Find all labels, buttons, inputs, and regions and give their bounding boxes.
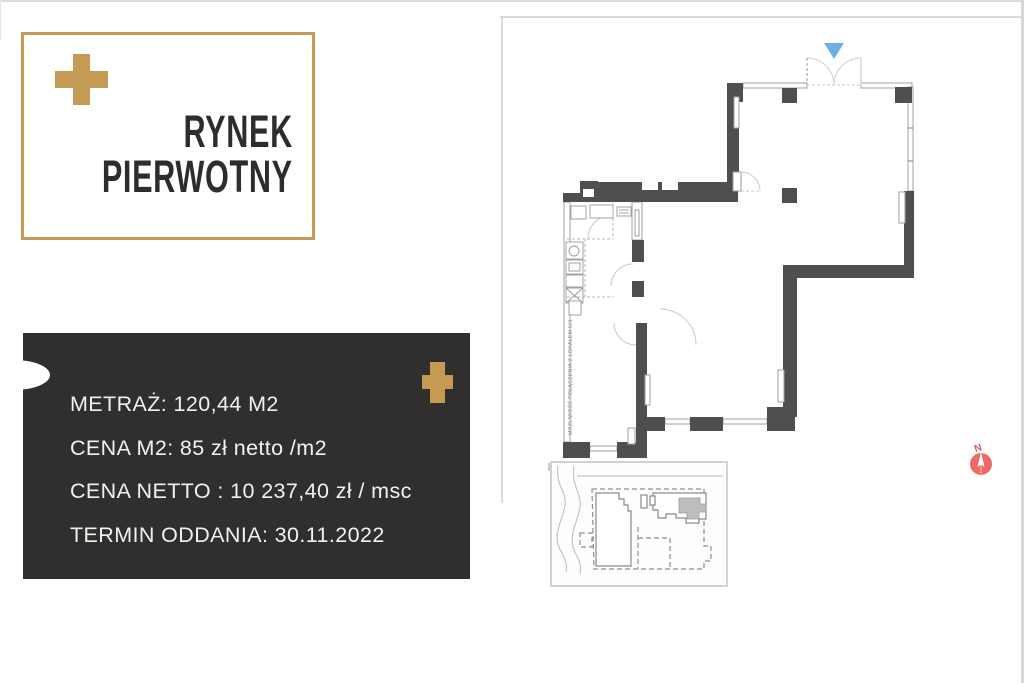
compass-icon: N <box>970 442 992 475</box>
listing-page: RYNEK PIERWOTNY METRAŻ: 120,44 M2 CENA M… <box>0 0 1024 683</box>
connection-label: MOŻLIWOŚĆ POŁĄCZENIA Z LOKALEM U/1 <box>566 319 574 435</box>
floor-plan: MOŻLIWOŚĆ POŁĄCZENIA Z LOKALEM U/1 <box>549 43 914 471</box>
walls <box>563 83 914 458</box>
kitchen-fixtures <box>566 205 631 315</box>
site-plan <box>551 462 727 586</box>
plan-graphic: MOŻLIWOŚĆ POŁĄCZENIA Z LOKALEM U/1 <box>0 0 1024 683</box>
entrance-door <box>807 58 861 85</box>
entrance-arrow-icon <box>824 43 844 59</box>
compass-north-label: N <box>973 442 983 455</box>
